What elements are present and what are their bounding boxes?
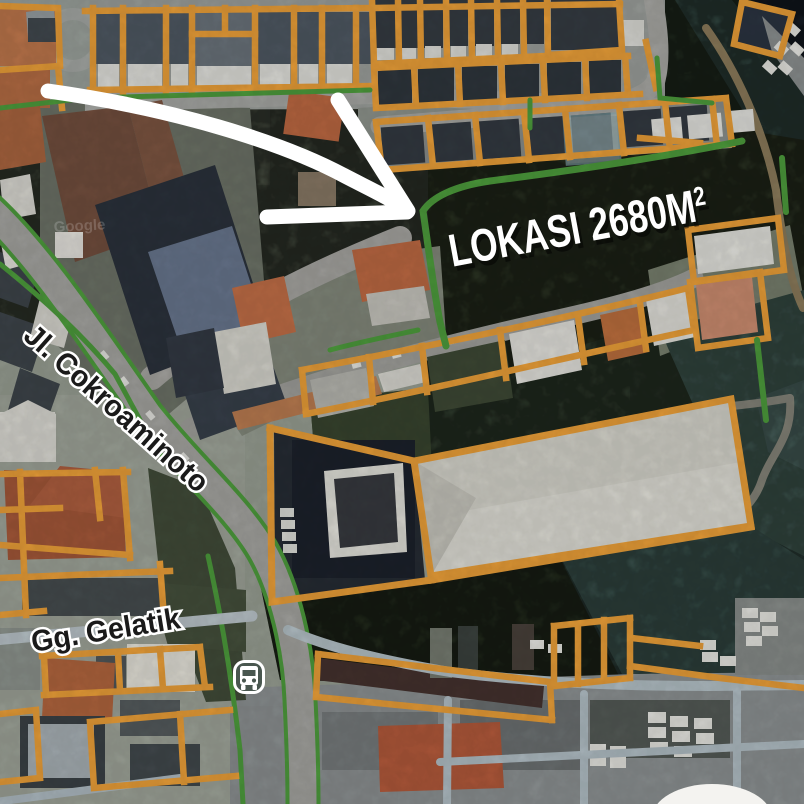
svg-text:Google: Google	[53, 216, 105, 236]
